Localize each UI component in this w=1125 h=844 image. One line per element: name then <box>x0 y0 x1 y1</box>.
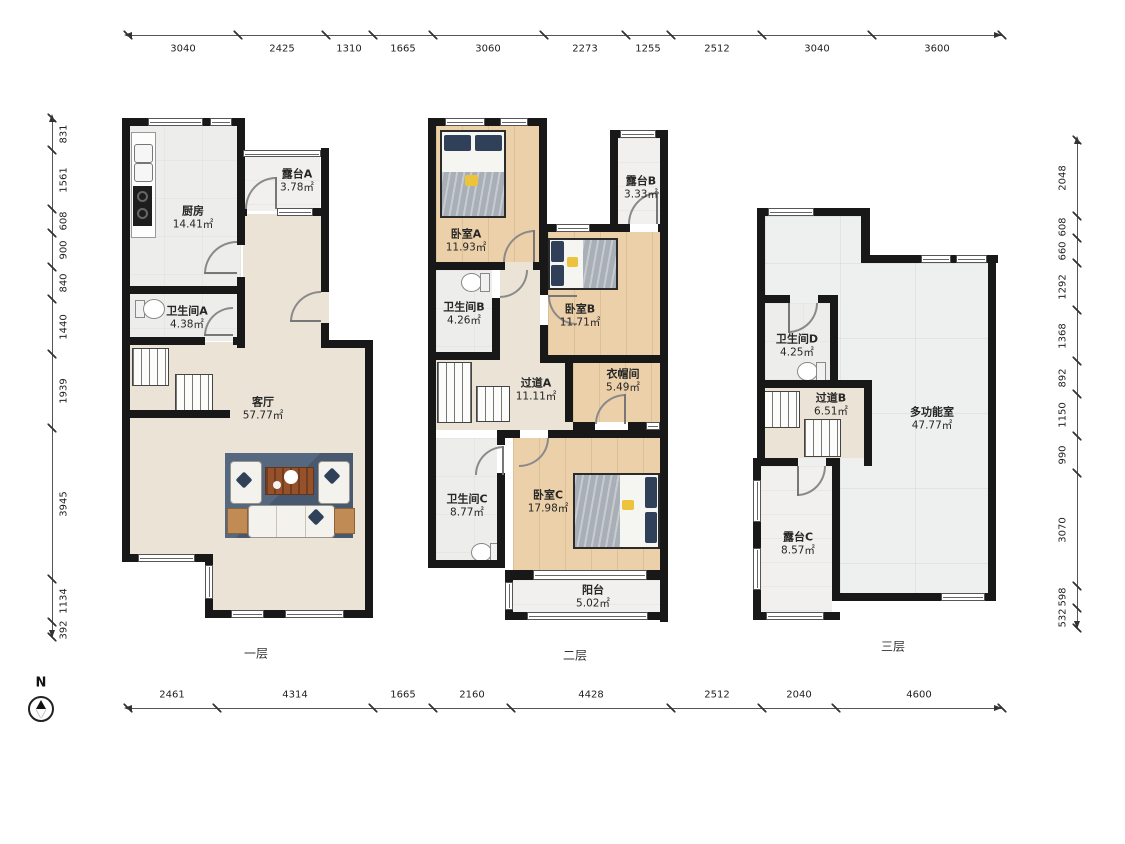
dim-tick <box>213 704 222 713</box>
room-label-kitchen: 厨房 14.41㎡ <box>173 205 214 232</box>
staircase <box>175 374 213 412</box>
dim-tick <box>1073 624 1082 633</box>
toilet <box>461 273 482 292</box>
room-label-bathroom-b: 卫生间B 4.26㎡ <box>443 301 484 328</box>
wall <box>428 118 436 568</box>
table-plate <box>284 470 298 484</box>
bed-accent <box>622 500 634 510</box>
wall <box>122 286 245 294</box>
dim-label: 2160 <box>459 690 484 701</box>
window <box>921 255 951 263</box>
toilet <box>143 299 165 319</box>
side-table <box>334 508 355 534</box>
wall <box>540 232 548 295</box>
room-label-hallway-b: 过道B 6.51㎡ <box>814 392 848 419</box>
dim-label: 1150 <box>1058 402 1069 427</box>
wall <box>610 224 630 232</box>
bed-blanket <box>583 240 616 288</box>
dim-label: 660 <box>1058 241 1069 260</box>
dim-label: 1368 <box>1058 323 1069 348</box>
door-leaf <box>533 230 535 262</box>
bed-pillow <box>444 135 471 151</box>
room-label-terrace-a: 露台A 3.78㎡ <box>280 168 314 195</box>
wall <box>757 295 790 303</box>
room-living-corridor <box>243 214 329 344</box>
room-label-balcony: 阳台 5.02㎡ <box>576 584 610 611</box>
window <box>620 130 656 138</box>
dim-tick <box>48 295 57 304</box>
dim-tick <box>48 633 57 642</box>
dim-tick <box>667 704 676 713</box>
dim-tick <box>48 350 57 359</box>
dim-label: 608 <box>59 211 70 230</box>
wall <box>658 224 668 232</box>
dim-label: 4428 <box>578 690 603 701</box>
dim-label: 1310 <box>336 44 361 55</box>
staircase <box>132 348 169 386</box>
wall <box>237 118 245 245</box>
dim-tick <box>124 704 133 713</box>
room-label-cloakroom: 衣帽间 5.49㎡ <box>606 368 640 395</box>
wall <box>505 430 520 438</box>
dim-label: 1939 <box>59 378 70 403</box>
door-leaf <box>624 394 626 424</box>
dim-tick <box>48 424 57 433</box>
dim-label: 1255 <box>635 44 660 55</box>
floorplan-canvas: 3040 2425 1310 1665 3060 2273 1255 2512 … <box>0 0 1125 844</box>
bed-blanket <box>575 475 620 547</box>
window <box>148 118 203 126</box>
wall <box>540 325 548 355</box>
window <box>210 118 232 126</box>
door-leaf <box>204 272 237 274</box>
staircase <box>804 419 841 457</box>
window <box>556 224 590 232</box>
wall <box>988 255 996 601</box>
door-leaf <box>797 466 799 496</box>
window <box>768 208 814 216</box>
bed-pillow <box>475 135 502 151</box>
door-leaf <box>502 446 504 475</box>
wall <box>573 422 595 430</box>
stove-burner <box>137 191 148 202</box>
wall <box>610 130 618 224</box>
dim-tick <box>758 31 767 40</box>
dim-label: 2512 <box>704 44 729 55</box>
toilet <box>797 362 818 381</box>
dim-tick <box>48 575 57 584</box>
dim-label: 598 <box>1058 587 1069 606</box>
wall <box>233 337 245 345</box>
room-label-bedroom-b: 卧室B 11.71㎡ <box>560 303 601 330</box>
wall <box>321 148 329 292</box>
window <box>285 610 344 618</box>
dim-label: 1134 <box>59 588 70 613</box>
staircase <box>476 386 510 422</box>
wall <box>122 410 230 418</box>
dimension-line <box>128 708 1002 709</box>
room-multifunction <box>765 216 862 265</box>
window <box>500 118 528 126</box>
dim-label: 532 <box>1058 608 1069 627</box>
dim-tick <box>1073 136 1082 145</box>
sofa <box>248 505 335 538</box>
room-label-terrace-b: 露台B 3.33㎡ <box>624 175 658 202</box>
door-leaf <box>275 177 277 209</box>
dim-tick <box>369 704 378 713</box>
window <box>138 554 195 562</box>
window <box>231 610 264 618</box>
compass-needle-south <box>36 709 46 718</box>
room-label-living: 客厅 57.77㎡ <box>243 396 284 423</box>
dim-label: 3040 <box>170 44 195 55</box>
side-table <box>227 508 248 534</box>
room-label-bedroom-c: 卧室C 17.98㎡ <box>528 489 569 516</box>
dim-label: 3040 <box>804 44 829 55</box>
dim-tick <box>1073 432 1082 441</box>
window <box>527 612 648 620</box>
wall <box>757 380 864 388</box>
room-label-multifunction: 多功能室 47.77㎡ <box>910 406 954 433</box>
dim-tick <box>48 618 57 627</box>
dim-label: 2273 <box>572 44 597 55</box>
room-label-bedroom-a: 卧室A 11.93㎡ <box>446 228 487 255</box>
room-label-hallway-a: 过道A 11.11㎡ <box>516 377 557 404</box>
dim-tick <box>1073 469 1082 478</box>
dim-label: 1440 <box>59 314 70 339</box>
wall <box>497 473 505 568</box>
dim-tick <box>868 31 877 40</box>
dim-tick <box>429 704 438 713</box>
dim-tick <box>507 704 516 713</box>
room-label-terrace-c: 露台C 8.57㎡ <box>781 531 815 558</box>
dim-label: 608 <box>1058 217 1069 236</box>
wall <box>832 466 840 601</box>
stove-burner <box>137 208 148 219</box>
dim-label: 2461 <box>159 690 184 701</box>
dim-tick <box>1073 582 1082 591</box>
dim-tick <box>322 31 331 40</box>
dim-tick <box>48 114 57 123</box>
wall <box>660 130 668 232</box>
dim-label: 3060 <box>475 44 500 55</box>
dim-tick <box>1073 212 1082 221</box>
wall <box>313 208 329 216</box>
window <box>766 612 824 620</box>
dim-tick <box>48 146 57 155</box>
dim-tick <box>234 31 243 40</box>
wall <box>565 363 573 422</box>
wall <box>428 352 500 360</box>
dim-label: 2425 <box>269 44 294 55</box>
window <box>277 208 313 216</box>
dim-label: 840 <box>59 273 70 292</box>
wall <box>660 422 668 430</box>
window <box>941 593 985 601</box>
dim-label: 3600 <box>924 44 949 55</box>
wall <box>830 295 838 388</box>
dim-tick <box>48 205 57 214</box>
dim-tick <box>48 263 57 272</box>
bed-accent <box>465 175 478 186</box>
dim-label: 3945 <box>59 491 70 516</box>
window <box>205 565 213 599</box>
dim-label: 1665 <box>390 44 415 55</box>
wall <box>492 262 500 270</box>
bed-pillow <box>551 241 564 262</box>
dim-tick <box>758 704 767 713</box>
wall <box>540 355 668 363</box>
dim-tick <box>998 31 1007 40</box>
dim-label: 990 <box>1058 445 1069 464</box>
floor-label-2: 二层 <box>563 647 587 664</box>
wall <box>647 570 668 580</box>
dim-label: 1292 <box>1058 274 1069 299</box>
dim-tick <box>1073 390 1082 399</box>
staircase <box>437 362 472 423</box>
dim-tick <box>1073 357 1082 366</box>
dim-label: 2512 <box>704 690 729 701</box>
door-leaf <box>548 295 577 297</box>
dim-tick <box>622 31 631 40</box>
room-label-bathroom-a: 卫生间A 4.38㎡ <box>166 305 208 332</box>
dim-tick <box>667 31 676 40</box>
dimension-line <box>52 118 53 637</box>
wall <box>628 422 646 430</box>
dim-tick <box>832 704 841 713</box>
dim-tick <box>1073 234 1082 243</box>
floor-label-1: 一层 <box>244 645 268 662</box>
window <box>505 582 513 610</box>
staircase <box>763 391 800 428</box>
wall <box>497 430 505 445</box>
dim-tick <box>369 31 378 40</box>
wall <box>864 380 872 466</box>
toilet <box>480 273 490 292</box>
kitchen-sink <box>134 144 153 163</box>
dim-label: 900 <box>59 240 70 259</box>
bed-pillow <box>645 477 657 508</box>
compass-needle-north <box>36 700 46 709</box>
floor-label-3: 三层 <box>881 638 905 655</box>
dim-tick <box>48 229 57 238</box>
dim-label: 1561 <box>59 167 70 192</box>
bed-pillow <box>551 265 564 286</box>
wall <box>826 458 840 466</box>
wall <box>548 430 668 438</box>
window <box>445 118 485 126</box>
window <box>753 548 761 590</box>
armchair <box>318 461 350 504</box>
window <box>753 480 761 522</box>
compass-north-label: N <box>36 676 47 691</box>
dim-label: 1665 <box>390 690 415 701</box>
room-label-bathroom-d: 卫生间D 4.25㎡ <box>776 333 818 360</box>
dim-label: 892 <box>1058 368 1069 387</box>
wall <box>428 560 505 568</box>
wall <box>492 298 500 360</box>
window <box>533 570 647 580</box>
window <box>243 150 321 157</box>
bed-pillow <box>645 512 657 543</box>
dim-label: 4600 <box>906 690 931 701</box>
dim-label: 4314 <box>282 690 307 701</box>
window <box>646 422 660 430</box>
kitchen-sink <box>134 163 153 182</box>
table-plate <box>273 481 281 489</box>
dim-label: 2040 <box>786 690 811 701</box>
dim-tick <box>1073 604 1082 613</box>
dim-label: 831 <box>59 124 70 143</box>
dim-tick <box>1073 306 1082 315</box>
room-label-bathroom-c: 卫生间C 8.77㎡ <box>446 493 487 520</box>
dim-label: 3070 <box>1058 517 1069 542</box>
dim-tick <box>1073 259 1082 268</box>
dim-tick <box>124 31 133 40</box>
toilet <box>816 362 826 381</box>
door-leaf <box>788 303 790 333</box>
dim-tick <box>429 31 438 40</box>
wall <box>237 208 247 216</box>
wall <box>122 337 205 345</box>
dim-label: 2048 <box>1058 165 1069 190</box>
door-leaf <box>290 320 321 322</box>
door-leaf <box>204 334 233 336</box>
wall <box>365 340 373 618</box>
wall <box>757 208 765 458</box>
dim-tick <box>540 31 549 40</box>
dim-label: 392 <box>59 620 70 639</box>
dim-tick <box>998 704 1007 713</box>
window <box>956 255 987 263</box>
bed-accent <box>567 257 578 267</box>
